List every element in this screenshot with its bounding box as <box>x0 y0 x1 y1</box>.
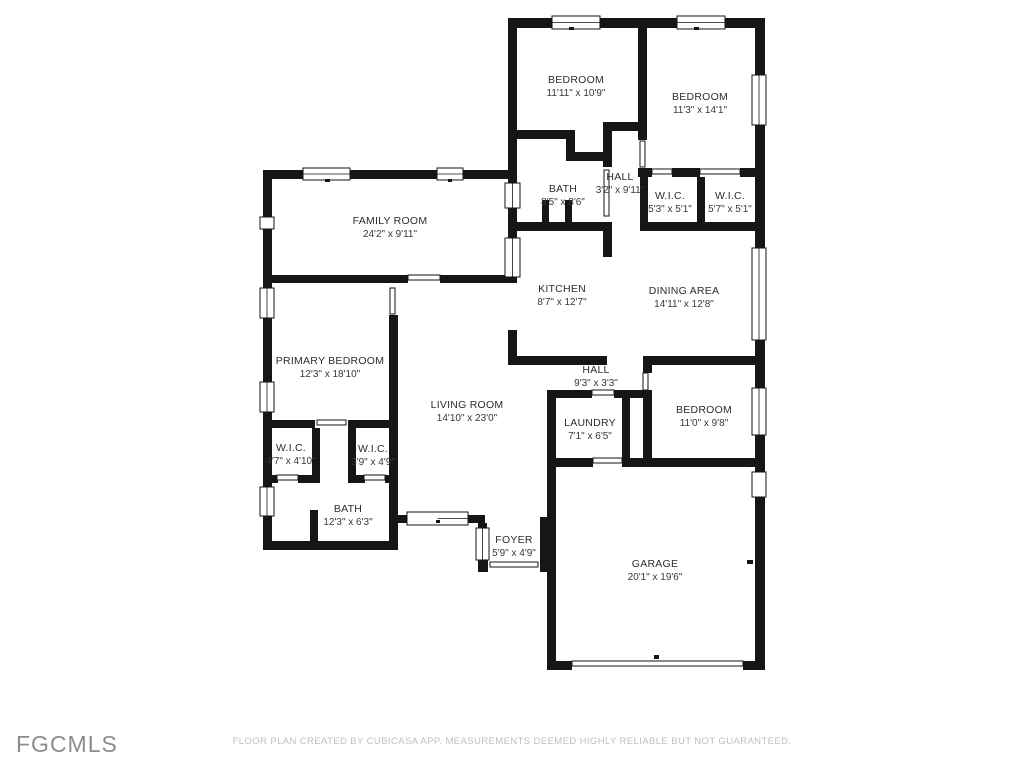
room-dims: 14'11" x 12'8" <box>649 298 719 311</box>
room-label-kitchen: KITCHEN 8'7" x 12'7" <box>537 283 586 309</box>
room-name: PRIMARY BEDROOM <box>276 355 384 368</box>
floor-plan-drawing <box>0 0 1024 768</box>
room-label-wic-1: W.I.C. 5'3" x 5'1" <box>648 190 692 216</box>
garage-door <box>572 661 743 666</box>
room-name: W.I.C. <box>351 443 395 456</box>
room-label-bedroom-2: BEDROOM 11'3" x 14'1" <box>672 91 728 117</box>
room-name: BEDROOM <box>547 74 606 87</box>
room-dims: 8'7" x 12'7" <box>537 296 586 309</box>
room-dims: 12'3" x 18'10" <box>276 368 384 381</box>
room-name: FAMILY ROOM <box>353 215 428 228</box>
room-name: HALL <box>596 171 645 184</box>
room-name: KITCHEN <box>537 283 586 296</box>
room-label-laundry: LAUNDRY 7'1" x 6'5" <box>564 417 616 443</box>
room-dims: 11'3" x 14'1" <box>672 104 728 117</box>
room-label-bath-1: BATH 8'5" x 8'6" <box>541 183 585 209</box>
room-label-living-room: LIVING ROOM 14'10" x 23'0" <box>431 399 504 425</box>
room-name: W.I.C. <box>266 442 315 455</box>
room-dims: 12'3" x 6'3" <box>323 516 372 529</box>
room-name: W.I.C. <box>708 190 752 203</box>
room-label-bedroom-3: BEDROOM 11'0" x 9'8" <box>676 404 732 430</box>
room-dims: 3'2" x 9'11" <box>596 184 645 197</box>
room-label-wic-4: W.I.C. 3'9" x 4'9" <box>351 443 395 469</box>
room-name: W.I.C. <box>648 190 692 203</box>
room-name: BEDROOM <box>676 404 732 417</box>
room-dims: 7'1" x 6'5" <box>564 430 616 443</box>
room-dims: 5'7" x 5'1" <box>708 203 752 216</box>
room-dims: 5'9" x 4'9" <box>492 547 536 560</box>
room-name: FOYER <box>492 534 536 547</box>
room-label-hall-1: HALL 3'2" x 9'11" <box>596 171 645 197</box>
room-name: GARAGE <box>628 558 683 571</box>
room-label-primary-bedroom: PRIMARY BEDROOM 12'3" x 18'10" <box>276 355 384 381</box>
room-dims: 11'11" x 10'9" <box>547 87 606 100</box>
room-dims: 14'10" x 23'0" <box>431 412 504 425</box>
room-dims: 3'9" x 4'9" <box>351 456 395 469</box>
room-dims: 8'5" x 8'6" <box>541 196 585 209</box>
room-label-foyer: FOYER 5'9" x 4'9" <box>492 534 536 560</box>
room-label-dining-area: DINING AREA 14'11" x 12'8" <box>649 285 719 311</box>
room-name: DINING AREA <box>649 285 719 298</box>
room-dims: 5'3" x 5'1" <box>648 203 692 216</box>
room-label-bedroom-1: BEDROOM 11'11" x 10'9" <box>547 74 606 100</box>
room-label-bath-2: BATH 12'3" x 6'3" <box>323 503 372 529</box>
room-label-wic-3: W.I.C. 4'7" x 4'10" <box>266 442 315 468</box>
room-dims: 9'3" x 3'3" <box>574 377 618 390</box>
room-name: LIVING ROOM <box>431 399 504 412</box>
room-name: BEDROOM <box>672 91 728 104</box>
room-name: BATH <box>541 183 585 196</box>
room-label-hall-2: HALL 9'3" x 3'3" <box>574 364 618 390</box>
room-name: BATH <box>323 503 372 516</box>
disclaimer-text: FLOOR PLAN CREATED BY CUBICASA APP. MEAS… <box>0 736 1024 747</box>
room-label-family-room: FAMILY ROOM 24'2" x 9'11" <box>353 215 428 241</box>
room-dims: 4'7" x 4'10" <box>266 455 315 468</box>
room-name: LAUNDRY <box>564 417 616 430</box>
floor-plan-page: BEDROOM 11'11" x 10'9" BEDROOM 11'3" x 1… <box>0 0 1024 768</box>
room-label-wic-2: W.I.C. 5'7" x 5'1" <box>708 190 752 216</box>
room-dims: 20'1" x 19'6" <box>628 571 683 584</box>
room-name: HALL <box>574 364 618 377</box>
room-dims: 11'0" x 9'8" <box>676 417 732 430</box>
room-dims: 24'2" x 9'11" <box>353 228 428 241</box>
room-label-garage: GARAGE 20'1" x 19'6" <box>628 558 683 584</box>
